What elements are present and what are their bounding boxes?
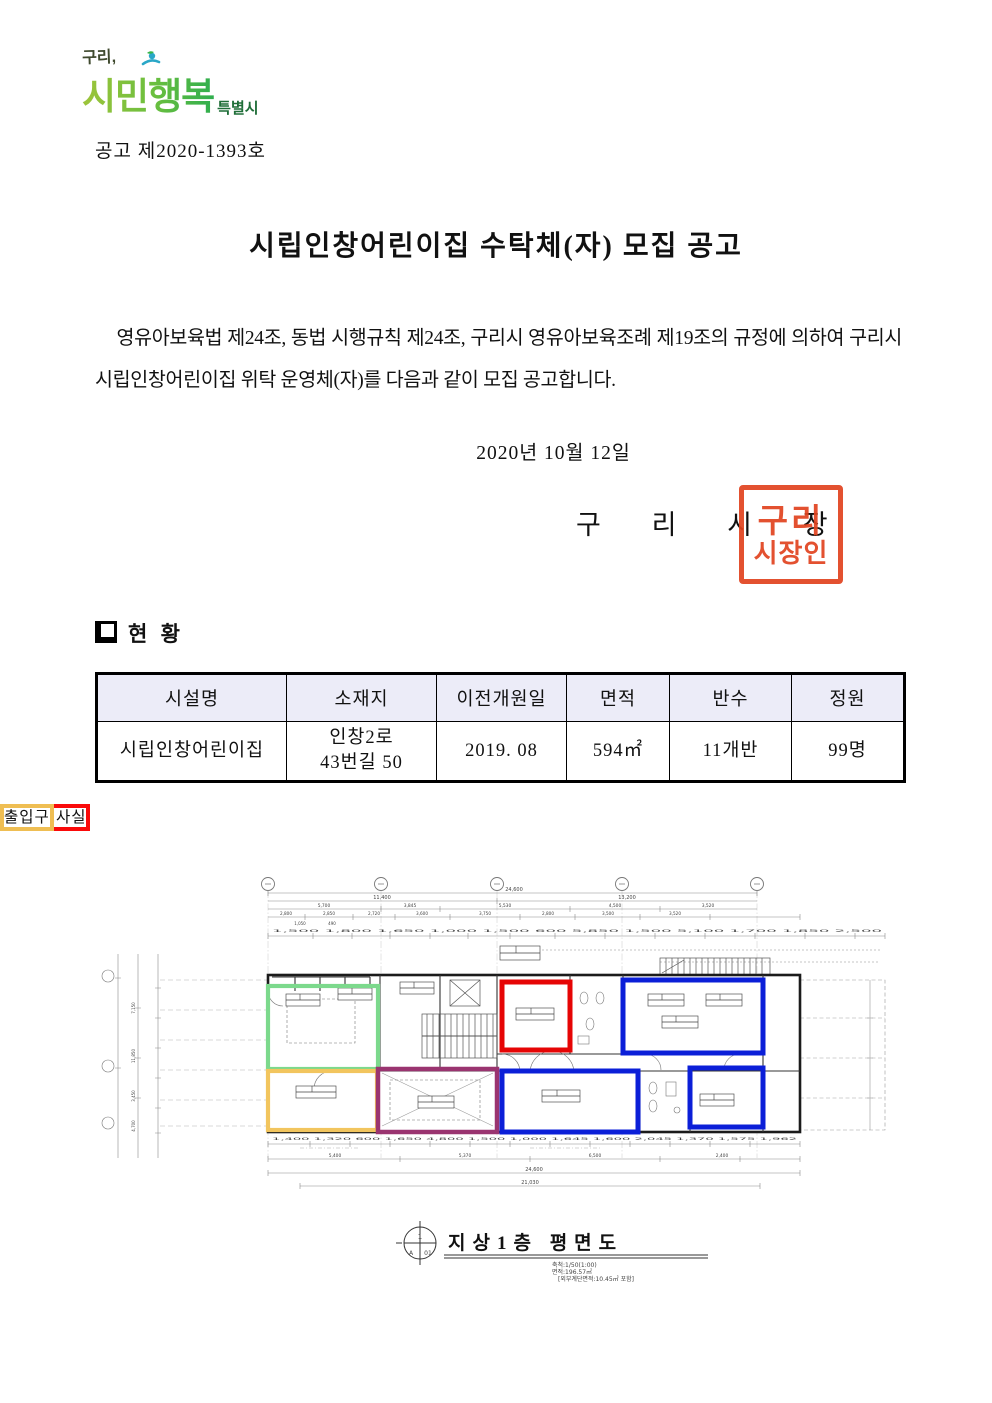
svg-text:2,800: 2,800 bbox=[280, 911, 292, 916]
col-address: 소재지 bbox=[287, 674, 437, 722]
dimension-lines-top bbox=[268, 890, 885, 962]
logo-city-text: 구리, bbox=[82, 36, 313, 68]
plan-sub-note: [외부계단면적:10.45㎡ 포함] bbox=[558, 1275, 634, 1283]
plan-title: 지상1층 평면도 bbox=[448, 1232, 623, 1254]
logo-suffix: 특별시 bbox=[217, 100, 258, 117]
svg-text:5,530: 5,530 bbox=[499, 903, 512, 909]
svg-text:1: 1 bbox=[418, 1233, 422, 1241]
svg-text:24,600: 24,600 bbox=[525, 1167, 543, 1173]
svg-text:7,150: 7,150 bbox=[131, 1002, 136, 1014]
page-title: 시립인창어린이집 수탁체(자) 모집 공고 bbox=[0, 224, 992, 264]
dimension-labels-bottom: 1,400 1,320 600 1,650 4,800 1,500 1,000 … bbox=[272, 1136, 799, 1186]
svg-text:1,400 1,320 600 1,650 4,80: 1,400 1,320 600 1,650 4,800 1,500 1,000 … bbox=[272, 1136, 799, 1141]
svg-text:3,750: 3,750 bbox=[479, 911, 491, 916]
svg-text:3,520: 3,520 bbox=[669, 911, 681, 916]
cell-facility-name: 시립인창어린이집 bbox=[97, 722, 287, 782]
dimension-labels-top: 24,600 11,400 13,200 5,700 3,845 5,530 4… bbox=[272, 887, 885, 933]
svg-text:2,850: 2,850 bbox=[323, 911, 335, 916]
logo-person-icon bbox=[138, 50, 164, 76]
floor-plan: 24,600 11,400 13,200 5,700 3,845 5,530 4… bbox=[100, 858, 912, 1294]
legend-entrance: 출입구 bbox=[0, 804, 54, 831]
col-classes: 반수 bbox=[670, 674, 792, 722]
plan-caption: 1 A 01 지상1층 평면도 축척:1/50(1:00) 면적:196.57㎡… bbox=[396, 1221, 708, 1283]
svg-text:6,500: 6,500 bbox=[589, 1153, 602, 1159]
svg-text:3,450: 3,450 bbox=[131, 1090, 136, 1102]
svg-text:490: 490 bbox=[328, 921, 336, 926]
svg-text:3,600: 3,600 bbox=[416, 911, 428, 916]
city-logo: 구리, 시민행복특별시 bbox=[82, 40, 312, 132]
dimension-labels-left: 7,150 11,850 3,450 4,700 bbox=[131, 1002, 136, 1132]
svg-text:2,720: 2,720 bbox=[368, 911, 380, 916]
svg-text:3,500: 3,500 bbox=[602, 911, 614, 916]
outdoor-stair bbox=[660, 958, 770, 975]
terrace-area bbox=[800, 980, 885, 1130]
svg-text:11,400: 11,400 bbox=[373, 895, 391, 901]
dimension-lines-left bbox=[102, 954, 268, 1158]
svg-text:2,800: 2,800 bbox=[542, 911, 554, 916]
drawing-number-symbol bbox=[396, 1221, 436, 1265]
section-heading: 현 황 bbox=[95, 618, 184, 648]
seal-text-bottom: 시장인 bbox=[754, 540, 829, 566]
facility-status-table: 시설명 소재지 이전개원일 면적 반수 정원 시립인창어린이집 인창2로 43번… bbox=[95, 672, 906, 783]
cell-capacity: 99명 bbox=[792, 722, 905, 782]
logo-slogan: 시민행복 bbox=[82, 76, 214, 117]
svg-text:3,845: 3,845 bbox=[404, 903, 417, 909]
official-seal: 구리 시장인 bbox=[739, 485, 843, 584]
svg-text:11,850: 11,850 bbox=[131, 1049, 136, 1063]
announcement-body: 영유아보육법 제24조, 동법 시행규칙 제24조, 구리시 영유아보육조례 제… bbox=[95, 318, 902, 402]
svg-text:21,030: 21,030 bbox=[521, 1180, 539, 1186]
plan-area-note: 면적:196.57㎡ bbox=[552, 1268, 592, 1276]
section-title: 현 황 bbox=[128, 622, 184, 646]
col-area: 면적 bbox=[567, 674, 670, 722]
svg-text:01: 01 bbox=[424, 1250, 432, 1257]
svg-text:5,400: 5,400 bbox=[329, 1153, 342, 1159]
cell-address: 인창2로 43번길 50 bbox=[287, 722, 437, 782]
svg-text:13,200: 13,200 bbox=[618, 895, 636, 901]
svg-text:3,520: 3,520 bbox=[702, 903, 715, 909]
svg-text:4,500: 4,500 bbox=[609, 903, 622, 909]
svg-text:1,050: 1,050 bbox=[294, 921, 306, 926]
svg-text:4,700: 4,700 bbox=[131, 1120, 136, 1132]
table-row: 시립인창어린이집 인창2로 43번길 50 2019. 08 594㎡ 11개반… bbox=[97, 722, 905, 782]
col-capacity: 정원 bbox=[792, 674, 905, 722]
svg-text:1,500 1,800 1,650 1,000 1,: 1,500 1,800 1,650 1,000 1,500 600 5,850 … bbox=[272, 928, 885, 933]
cell-open-date: 2019. 08 bbox=[437, 722, 567, 782]
col-facility-name: 시설명 bbox=[97, 674, 287, 722]
square-bullet-icon bbox=[95, 621, 117, 643]
svg-text:2,400: 2,400 bbox=[716, 1153, 729, 1159]
announcement-date: 2020년 10월 12일 bbox=[0, 436, 992, 465]
svg-text:A: A bbox=[409, 1250, 414, 1257]
plan-scale-note: 축척:1/50(1:00) bbox=[552, 1261, 597, 1269]
col-open-date: 이전개원일 bbox=[437, 674, 567, 722]
document-number: 공고 제2020-1393호 bbox=[95, 136, 266, 163]
svg-text:5,700: 5,700 bbox=[318, 903, 331, 909]
cell-area: 594㎡ bbox=[567, 722, 670, 782]
svg-text:5,370: 5,370 bbox=[459, 1153, 472, 1159]
cell-classes: 11개반 bbox=[670, 722, 792, 782]
table-header-row: 시설명 소재지 이전개원일 면적 반수 정원 bbox=[97, 674, 905, 722]
seal-text-top: 구리 bbox=[758, 504, 825, 537]
svg-text:24,600: 24,600 bbox=[505, 887, 523, 893]
